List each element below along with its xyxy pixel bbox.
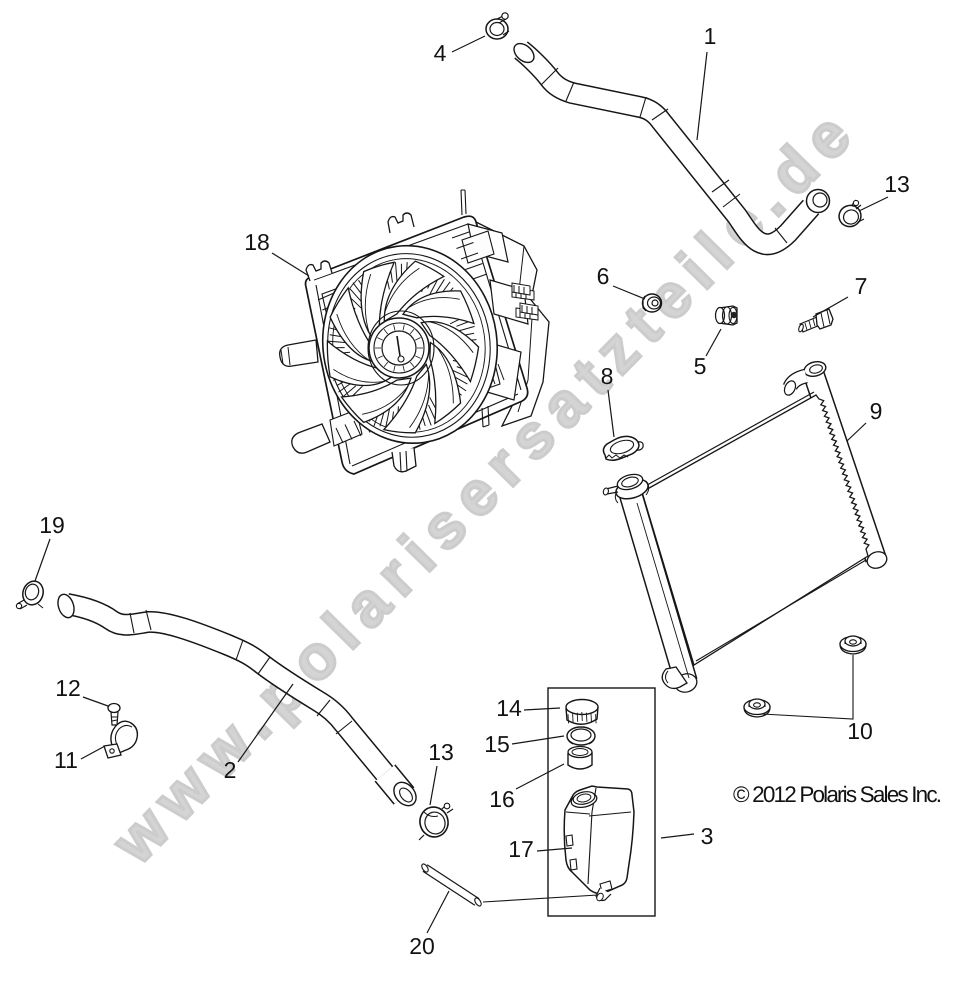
svg-text:9: 9 xyxy=(870,398,883,424)
svg-text:16: 16 xyxy=(489,786,515,812)
svg-text:6: 6 xyxy=(597,263,610,289)
svg-text:17: 17 xyxy=(508,836,534,862)
svg-text:20: 20 xyxy=(409,933,435,959)
svg-text:15: 15 xyxy=(484,731,510,757)
svg-text:4: 4 xyxy=(434,40,447,66)
svg-text:© 2012 Polaris Sales Inc.: © 2012 Polaris Sales Inc. xyxy=(733,782,942,807)
svg-text:14: 14 xyxy=(496,695,522,721)
svg-text:11: 11 xyxy=(54,747,78,773)
svg-text:13: 13 xyxy=(428,739,454,765)
svg-text:3: 3 xyxy=(701,823,714,849)
svg-text:18: 18 xyxy=(244,229,270,255)
svg-text:1: 1 xyxy=(704,23,717,49)
svg-text:5: 5 xyxy=(694,353,707,379)
svg-text:12: 12 xyxy=(55,675,81,701)
svg-text:10: 10 xyxy=(847,718,873,744)
svg-text:19: 19 xyxy=(39,512,65,538)
svg-text:7: 7 xyxy=(855,273,868,299)
svg-text:8: 8 xyxy=(601,363,614,389)
svg-text:13: 13 xyxy=(884,171,910,197)
svg-text:2: 2 xyxy=(224,757,237,783)
